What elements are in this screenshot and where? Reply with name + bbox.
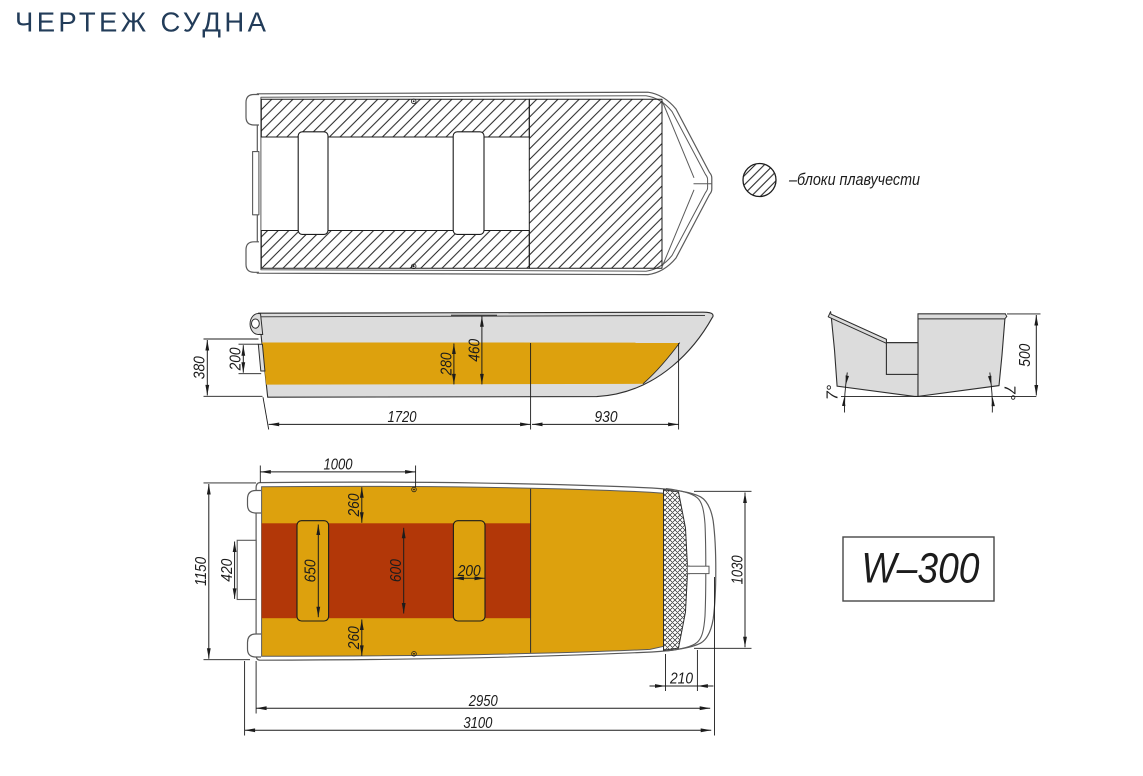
svg-text:W–300: W–300 (862, 545, 980, 593)
svg-text:420: 420 (219, 559, 236, 582)
svg-text:200: 200 (228, 347, 245, 371)
svg-text:3100: 3100 (463, 715, 492, 732)
svg-text:–блоки плавучести: –блоки плавучести (788, 170, 920, 189)
svg-text:1150: 1150 (193, 557, 210, 586)
svg-text:460: 460 (466, 339, 483, 362)
svg-text:7°: 7° (825, 384, 842, 400)
svg-text:500: 500 (1017, 344, 1034, 367)
svg-text:280: 280 (438, 352, 455, 376)
svg-text:210: 210 (669, 671, 693, 688)
svg-text:ЧЕРТЕЖ СУДНА: ЧЕРТЕЖ СУДНА (15, 7, 267, 38)
svg-text:2950: 2950 (468, 693, 498, 710)
svg-text:1720: 1720 (388, 409, 417, 426)
svg-text:650: 650 (303, 559, 320, 582)
svg-text:930: 930 (595, 409, 618, 426)
svg-text:260: 260 (346, 626, 363, 650)
svg-text:1030: 1030 (729, 555, 746, 584)
svg-text:1000: 1000 (324, 457, 353, 474)
svg-text:600: 600 (388, 559, 405, 582)
svg-text:260: 260 (346, 493, 363, 517)
svg-text:7°: 7° (1001, 385, 1018, 401)
svg-text:200: 200 (457, 563, 481, 580)
svg-text:380: 380 (192, 356, 209, 379)
